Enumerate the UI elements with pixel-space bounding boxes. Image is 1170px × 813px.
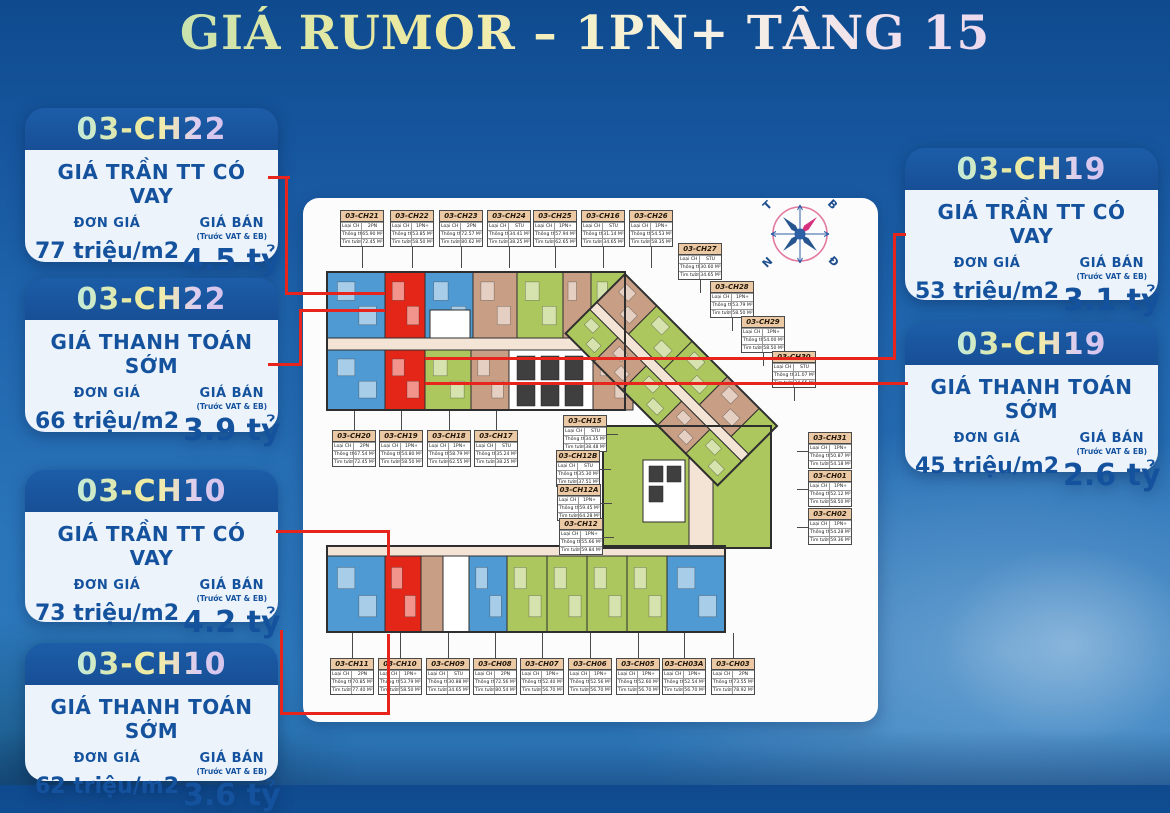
unit-label-03-CH08: 03-CH08Loại CH2PNThông thủy72.56 M²Tim t…: [473, 658, 517, 695]
price-card-unit-code: 03-CH19: [956, 327, 1106, 362]
unit-row-gross: Tim tường59.84 M²: [560, 546, 602, 554]
row-key: Thông thủy: [582, 231, 603, 238]
sale-price-note: (Trước VAT & EB): [196, 232, 267, 241]
row-value: 34.65 M²: [603, 239, 624, 246]
unit-row-gross: Tim tường58.50 M²: [391, 238, 433, 246]
row-value: 1PN+: [555, 223, 576, 230]
row-key: Thông thủy: [475, 451, 496, 458]
label-connector: [603, 246, 604, 268]
plan-green-area: [587, 556, 627, 632]
sale-price-note: (Trước VAT & EB): [196, 767, 267, 776]
row-value: 52.56 M²: [590, 679, 611, 686]
row-value: 52.40 M²: [542, 679, 563, 686]
unit-row-gross: Tim tường56.70 M²: [663, 686, 705, 694]
unit-row-type: Loại CH1PN+: [711, 293, 753, 301]
unit-label-03-CH28: 03-CH28Loại CH1PN+Thông thủy53.79 M²Tim …: [710, 281, 754, 318]
row-value: 50.87 M²: [830, 453, 851, 460]
plan-white-area: [430, 310, 470, 338]
row-value: STU: [794, 364, 815, 371]
row-value: 1PN+: [732, 294, 753, 301]
unit-label-03-CH07: 03-CH07Loại CH1PN+Thông thủy52.40 M²Tim …: [520, 658, 564, 695]
unit-row-type: Loại CHSTU: [475, 442, 517, 450]
unit-row-type: Loại CH1PN+: [617, 670, 659, 678]
row-key: Tim tường: [428, 459, 449, 466]
row-key: Loại CH: [488, 223, 509, 230]
unit-row-gross: Tim tường58.50 M²: [380, 458, 422, 466]
unit-row-net: Thông thủy73.55 M²: [712, 678, 754, 686]
plan-core-area: [541, 384, 559, 406]
row-value: 1PN+: [590, 671, 611, 678]
unit-row-net: Thông thủy55.66 M²: [560, 538, 602, 546]
unit-row-net: Thông thủy30.88 M²: [427, 678, 469, 686]
price-card-unit-code: 03-CH10: [76, 647, 226, 682]
unit-row-type: Loại CH1PN+: [534, 222, 576, 230]
unit-row-net: Thông thủy35.30 M²: [557, 470, 599, 478]
unit-row-net: Thông thủy31.07 M²: [773, 371, 815, 379]
unit-id: 03-CH05: [617, 659, 659, 670]
unit-row-type: Loại CHSTU: [564, 427, 606, 435]
row-key: Thông thủy: [521, 679, 542, 686]
label-connector: [700, 279, 701, 293]
row-key: Loại CH: [521, 671, 542, 678]
cloud-texture: [860, 530, 1170, 785]
row-key: Tim tường: [521, 687, 542, 694]
row-key: Tim tường: [474, 687, 495, 694]
row-key: Thông thủy: [809, 491, 830, 498]
unit-row-type: Loại CH2PN: [331, 670, 373, 678]
sale-price-note: (Trước VAT & EB): [1076, 272, 1147, 281]
unit-row-net: Thông thủy54.80 M²: [380, 450, 422, 458]
price-card-header: 03-CH22: [25, 108, 278, 150]
price-card-1: 03-CH22 GIÁ TRẦN TT CÓ VAY ĐƠN GIÁ 77 tr…: [25, 108, 278, 262]
page: { "title": "GIÁ RUMOR – 1PN+ TẦNG 15", "…: [0, 0, 1170, 785]
price-card-header: 03-CH19: [905, 148, 1158, 190]
row-key: Loại CH: [380, 443, 401, 450]
row-key: Loại CH: [341, 223, 362, 230]
row-key: Loại CH: [742, 329, 763, 336]
row-key: Thông thủy: [488, 231, 509, 238]
unit-price-value: 53 triệu/m2: [915, 279, 1059, 304]
red-connector-line: [299, 309, 385, 312]
plan-blue-area: [327, 272, 385, 338]
plan-green-area: [547, 556, 587, 632]
row-value: 1PN+: [542, 671, 563, 678]
row-value: STU: [603, 223, 624, 230]
unit-price-label: ĐƠN GIÁ: [74, 216, 141, 231]
furniture-mark: [514, 567, 526, 588]
row-key: Tim tường: [475, 459, 496, 466]
unit-label-03-CH01: 03-CH01Loại CH1PN+Thông thủy52.12 M²Tim …: [808, 470, 852, 507]
furniture-mark: [529, 596, 541, 617]
plan-core-area: [517, 384, 535, 406]
furniture-mark: [407, 306, 419, 324]
label-connector: [412, 246, 413, 268]
unit-id: 03-CH31: [809, 433, 851, 444]
red-connector-line: [299, 309, 302, 366]
unit-row-net: Thông thủy35.24 M²: [475, 450, 517, 458]
row-value: 58.50 M²: [412, 239, 433, 246]
unit-label-03-CH16: 03-CH16Loại CHSTUThông thủy31.14 M²Tim t…: [581, 210, 625, 247]
row-key: Thông thủy: [428, 451, 449, 458]
row-key: Thông thủy: [440, 231, 461, 238]
furniture-mark: [569, 596, 581, 617]
row-value: 59.36 M²: [830, 537, 851, 544]
unit-row-type: Loại CHSTU: [582, 222, 624, 230]
unit-row-net: Thông thủy52.54 M²: [663, 678, 705, 686]
unit-row-gross: Tim tường80.54 M²: [474, 686, 516, 694]
row-key: Thông thủy: [380, 451, 401, 458]
unit-id: 03-CH08: [474, 659, 516, 670]
sale-price-value: 4.2 tỷ: [183, 605, 281, 640]
unit-row-type: Loại CH1PN+: [521, 670, 563, 678]
row-value: 59.84 M²: [581, 547, 602, 554]
unit-price-label: ĐƠN GIÁ: [954, 431, 1021, 446]
row-key: Loại CH: [331, 671, 352, 678]
row-value: 58.50 M²: [830, 499, 851, 506]
unit-row-type: Loại CHSTU: [679, 255, 721, 263]
row-value: 34.65 M²: [700, 272, 721, 279]
label-connector: [602, 537, 614, 538]
sale-price-note: (Trước VAT & EB): [1076, 447, 1147, 456]
row-value: 1PN+: [412, 223, 433, 230]
row-key: Thông thủy: [663, 679, 684, 686]
unit-row-type: Loại CH1PN+: [809, 444, 851, 452]
unit-row-gross: Tim tường62.55 M²: [428, 458, 470, 466]
unit-label-03-CH27: 03-CH27Loại CHSTUThông thủy30.60 M²Tim t…: [678, 243, 722, 280]
red-connector-line: [276, 530, 390, 533]
sale-price-value: 3.1 tỷ: [1063, 283, 1161, 318]
red-connector-line: [387, 634, 390, 715]
unit-price-label: ĐƠN GIÁ: [74, 386, 141, 401]
furniture-mark: [433, 359, 447, 376]
row-value: 62.65 M²: [555, 239, 576, 246]
row-value: 53.79 M²: [732, 302, 753, 309]
row-value: 80.62 M²: [461, 239, 482, 246]
row-key: Tim tường: [663, 687, 684, 694]
price-card-3: 03-CH10 GIÁ TRẦN TT CÓ VAY ĐƠN GIÁ 73 tr…: [25, 470, 278, 622]
row-value: 77.40 M²: [352, 687, 373, 694]
row-key: Tim tường: [560, 547, 581, 554]
row-key: Loại CH: [564, 428, 585, 435]
unit-label-03-CH15: 03-CH15Loại CHSTUThông thủy34.35 M²Tim t…: [563, 415, 607, 452]
row-value: 72.45 M²: [362, 239, 383, 246]
unit-id: 03-CH15: [564, 416, 606, 427]
unit-row-gross: Tim tường56.70 M²: [617, 686, 659, 694]
price-card-body: GIÁ TRẦN TT CÓ VAY ĐƠN GIÁ 53 triệu/m2 G…: [905, 190, 1158, 300]
furniture-mark: [434, 282, 448, 300]
row-value: 72.45 M²: [354, 459, 375, 466]
unit-id: 03-CH21: [341, 211, 383, 222]
unit-id: 03-CH11: [331, 659, 373, 670]
unit-label-03-CH29: 03-CH29Loại CH1PN+Thông thủy54.00 M²Tim …: [741, 316, 785, 353]
row-value: 31.07 M²: [794, 372, 815, 379]
unit-row-type: Loại CH1PN+: [379, 670, 421, 678]
label-connector: [449, 411, 450, 431]
row-value: 56.70 M²: [542, 687, 563, 694]
unit-row-net: Thông thủy30.60 M²: [679, 263, 721, 271]
label-connector: [797, 489, 809, 490]
row-value: 1PN+: [449, 443, 470, 450]
row-value: 73.55 M²: [733, 679, 754, 686]
row-value: STU: [578, 463, 599, 470]
furniture-mark: [677, 567, 694, 588]
plan-green-area: [627, 556, 667, 632]
price-card-body: GIÁ THANH TOÁN SỚM ĐƠN GIÁ 66 triệu/m2 G…: [25, 320, 278, 432]
label-connector: [461, 246, 462, 268]
row-value: 53.79 M²: [400, 679, 421, 686]
row-key: Loại CH: [428, 443, 449, 450]
row-key: Tim tường: [333, 459, 354, 466]
row-key: Tim tường: [809, 461, 830, 468]
row-value: 1PN+: [651, 223, 672, 230]
label-connector: [590, 633, 591, 659]
row-value: 54.80 M²: [401, 451, 422, 458]
row-value: 58.35 M²: [651, 239, 672, 246]
unit-row-gross: Tim tường56.70 M²: [569, 686, 611, 694]
price-card-header: 03-CH10: [25, 643, 278, 685]
row-key: Tim tường: [809, 537, 830, 544]
plan-green-area: [517, 272, 563, 338]
row-value: 2PN: [352, 671, 373, 678]
red-connector-line: [893, 233, 906, 236]
unit-row-gross: Tim tường62.65 M²: [534, 238, 576, 246]
row-key: Thông thủy: [712, 679, 733, 686]
unit-row-type: Loại CH1PN+: [809, 482, 851, 490]
price-type-label: GIÁ THANH TOÁN SỚM: [35, 330, 268, 378]
row-key: Thông thủy: [557, 471, 578, 478]
row-key: Tim tường: [809, 499, 830, 506]
row-value: 55.66 M²: [581, 539, 602, 546]
row-value: 65.90 M²: [362, 231, 383, 238]
row-key: Tim tường: [582, 239, 603, 246]
unit-id: 03-CH01: [809, 471, 851, 482]
unit-price-label: ĐƠN GIÁ: [74, 578, 141, 593]
furniture-mark: [490, 596, 501, 617]
row-key: Tim tường: [569, 687, 590, 694]
unit-row-gross: Tim tường34.65 M²: [427, 686, 469, 694]
unit-row-gross: Tim tường56.70 M²: [521, 686, 563, 694]
price-card-2: 03-CH22 GIÁ THANH TOÁN SỚM ĐƠN GIÁ 66 tr…: [25, 278, 278, 432]
plan-core-area: [649, 466, 663, 482]
unit-row-type: Loại CH1PN+: [809, 520, 851, 528]
sale-price-label: GIÁ BÁN: [1080, 256, 1144, 271]
unit-label-03-CH09: 03-CH09Loại CHSTUThông thủy30.88 M²Tim t…: [426, 658, 470, 695]
unit-label-03-CH02: 03-CH02Loại CH1PN+Thông thủy54.28 M²Tim …: [808, 508, 852, 545]
unit-row-net: Thông thủy53.79 M²: [379, 678, 421, 686]
row-key: Tim tường: [341, 239, 362, 246]
unit-id: 03-CH23: [440, 211, 482, 222]
compass-letter-b: B: [825, 198, 840, 212]
sale-price-note: (Trước VAT & EB): [196, 594, 267, 603]
row-value: 1PN+: [830, 521, 851, 528]
unit-row-gross: Tim tường34.65 M²: [679, 271, 721, 279]
row-value: 54.28 M²: [830, 529, 851, 536]
unit-id: 03-CH25: [534, 211, 576, 222]
unit-label-03-CH05: 03-CH05Loại CH1PN+Thông thủy52.60 M²Tim …: [616, 658, 660, 695]
unit-row-net: Thông thủy50.87 M²: [809, 452, 851, 460]
row-key: Thông thủy: [773, 372, 794, 379]
row-value: 54.53 M²: [651, 231, 672, 238]
plan-core-area: [565, 384, 583, 406]
row-value: 54.00 M²: [763, 337, 784, 344]
unit-row-gross: Tim tường38.25 M²: [488, 238, 530, 246]
unit-row-gross: Tim tường78.92 M²: [712, 686, 754, 694]
row-key: Tim tường: [534, 239, 555, 246]
unit-label-03-CH12A: 03-CH12ALoại CH1PN+Thông thủy59.45 M²Tim…: [557, 484, 601, 521]
row-key: Thông thủy: [474, 679, 495, 686]
row-key: Loại CH: [534, 223, 555, 230]
label-connector: [495, 633, 496, 659]
row-value: 53.85 M²: [412, 231, 433, 238]
row-value: 2PN: [495, 671, 516, 678]
unit-label-03-CH18: 03-CH18Loại CH1PN+Thông thủy58.79 M²Tim …: [427, 430, 471, 467]
red-connector-line: [387, 530, 390, 562]
row-value: 56.70 M²: [684, 687, 705, 694]
unit-row-net: Thông thủy34.41 M²: [488, 230, 530, 238]
row-value: 30.88 M²: [448, 679, 469, 686]
row-value: STU: [700, 256, 721, 263]
row-key: Tim tường: [617, 687, 638, 694]
row-key: Tim tường: [488, 239, 509, 246]
unit-id: 03-CH10: [379, 659, 421, 670]
plan-blue-area: [327, 350, 385, 410]
furniture-mark: [359, 596, 376, 617]
label-connector: [400, 633, 401, 659]
row-value: 52.54 M²: [684, 679, 705, 686]
row-key: Tim tường: [427, 687, 448, 694]
furniture-mark: [594, 567, 606, 588]
red-connector-line: [285, 176, 288, 295]
unit-row-net: Thông thủy53.79 M²: [711, 301, 753, 309]
row-key: Thông thủy: [679, 264, 700, 271]
unit-price-label: ĐƠN GIÁ: [954, 256, 1021, 271]
compass-letter-d: Đ: [826, 254, 842, 270]
row-value: 1PN+: [579, 497, 600, 504]
furniture-mark: [392, 359, 404, 376]
unit-row-type: Loại CH2PN: [440, 222, 482, 230]
furniture-mark: [554, 567, 566, 588]
row-value: 34.65 M²: [448, 687, 469, 694]
unit-row-net: Thông thủy72.57 M²: [440, 230, 482, 238]
row-key: Loại CH: [427, 671, 448, 678]
unit-price-label: ĐƠN GIÁ: [74, 751, 141, 766]
unit-row-gross: Tim tường80.62 M²: [440, 238, 482, 246]
compass-hub: [795, 229, 806, 240]
compass-letter-n: N: [760, 255, 776, 271]
plan-core-area: [649, 486, 663, 502]
row-key: Thông thủy: [809, 529, 830, 536]
unit-id: 03-CH16: [582, 211, 624, 222]
row-value: 1PN+: [638, 671, 659, 678]
row-key: Thông thủy: [534, 231, 555, 238]
unit-id: 03-CH26: [630, 211, 672, 222]
row-value: 34.41 M²: [509, 231, 530, 238]
plan-blue-area: [469, 556, 507, 632]
unit-row-type: Loại CH1PN+: [428, 442, 470, 450]
row-value: 2PN: [733, 671, 754, 678]
unit-label-03-CH06: 03-CH06Loại CH1PN+Thông thủy52.56 M²Tim …: [568, 658, 612, 695]
plan-blue-area: [327, 556, 385, 632]
row-key: Loại CH: [809, 445, 830, 452]
sale-price-label: GIÁ BÁN: [200, 386, 264, 401]
unit-row-type: Loại CH2PN: [712, 670, 754, 678]
row-key: Thông thủy: [569, 679, 590, 686]
row-key: Thông thủy: [560, 539, 581, 546]
unit-row-type: Loại CH2PN: [333, 442, 375, 450]
price-card-header: 03-CH10: [25, 470, 278, 512]
furniture-mark: [391, 567, 402, 588]
unit-row-type: Loại CH1PN+: [560, 530, 602, 538]
row-value: 31.14 M²: [603, 231, 624, 238]
unit-row-type: Loại CH2PN: [474, 670, 516, 678]
row-value: 35.30 M²: [578, 471, 599, 478]
unit-row-net: Thông thủy52.56 M²: [569, 678, 611, 686]
row-value: 1PN+: [400, 671, 421, 678]
sale-price-value: 3.6 tỷ: [183, 778, 281, 813]
row-value: 72.56 M²: [495, 679, 516, 686]
red-connector-line: [285, 292, 385, 295]
row-key: Loại CH: [712, 671, 733, 678]
row-key: Tim tường: [391, 239, 412, 246]
price-card-body: GIÁ THANH TOÁN SỚM ĐƠN GIÁ 45 triệu/m2 G…: [905, 365, 1158, 472]
unit-label-03-CH22: 03-CH22Loại CH1PN+Thông thủy53.85 M²Tim …: [390, 210, 434, 247]
red-connector-line: [280, 712, 390, 715]
furniture-mark: [568, 282, 576, 300]
row-key: Thông thủy: [630, 231, 651, 238]
row-key: Loại CH: [440, 223, 461, 230]
row-key: Thông thủy: [341, 231, 362, 238]
unit-id: 03-CH12B: [557, 451, 599, 462]
row-key: Tim tường: [679, 272, 700, 279]
compass-letter-t: T: [760, 198, 775, 213]
row-key: Loại CH: [560, 531, 581, 538]
unit-row-type: Loại CH1PN+: [569, 670, 611, 678]
red-connector-line: [425, 382, 908, 385]
row-key: Loại CH: [630, 223, 651, 230]
furniture-mark: [476, 567, 487, 588]
row-key: Thông thủy: [711, 302, 732, 309]
row-value: 56.70 M²: [638, 687, 659, 694]
row-value: 1PN+: [830, 445, 851, 452]
highlighted-unit: [385, 272, 425, 338]
unit-label-03-CH26: 03-CH26Loại CH1PN+Thông thủy54.53 M²Tim …: [629, 210, 673, 247]
unit-row-net: Thông thủy52.60 M²: [617, 678, 659, 686]
row-value: 58.79 M²: [449, 451, 470, 458]
row-value: 1PN+: [763, 329, 784, 336]
unit-row-type: Loại CHSTU: [427, 670, 469, 678]
plan-green-area: [507, 556, 547, 632]
unit-label-03-CH31: 03-CH31Loại CH1PN+Thông thủy50.87 M²Tim …: [808, 432, 852, 469]
compass-rose: TBNĐ: [760, 198, 842, 270]
unit-label-03-CH20: 03-CH20Loại CH2PNThông thủy67.54 M²Tim t…: [332, 430, 376, 467]
unit-row-type: Loại CHSTU: [488, 222, 530, 230]
price-card-unit-code: 03-CH19: [956, 152, 1106, 187]
unit-label-03-CH03A: 03-CH03ALoại CH1PN+Thông thủy52.54 M²Tim…: [662, 658, 706, 695]
unit-row-net: Thông thủy34.35 M²: [564, 435, 606, 443]
price-type-label: GIÁ TRẦN TT CÓ VAY: [35, 522, 268, 570]
row-key: Loại CH: [391, 223, 412, 230]
unit-row-net: Thông thủy52.12 M²: [809, 490, 851, 498]
unit-row-type: Loại CH1PN+: [630, 222, 672, 230]
row-key: Thông thủy: [742, 337, 763, 344]
label-connector: [797, 527, 809, 528]
unit-label-03-CH17: 03-CH17Loại CHSTUThông thủy35.24 M²Tim t…: [474, 430, 518, 467]
sale-price-label: GIÁ BÁN: [200, 578, 264, 593]
unit-id: 03-CH12: [560, 519, 602, 530]
row-value: 34.35 M²: [585, 436, 606, 443]
row-value: STU: [585, 428, 606, 435]
unit-id: 03-CH02: [809, 509, 851, 520]
